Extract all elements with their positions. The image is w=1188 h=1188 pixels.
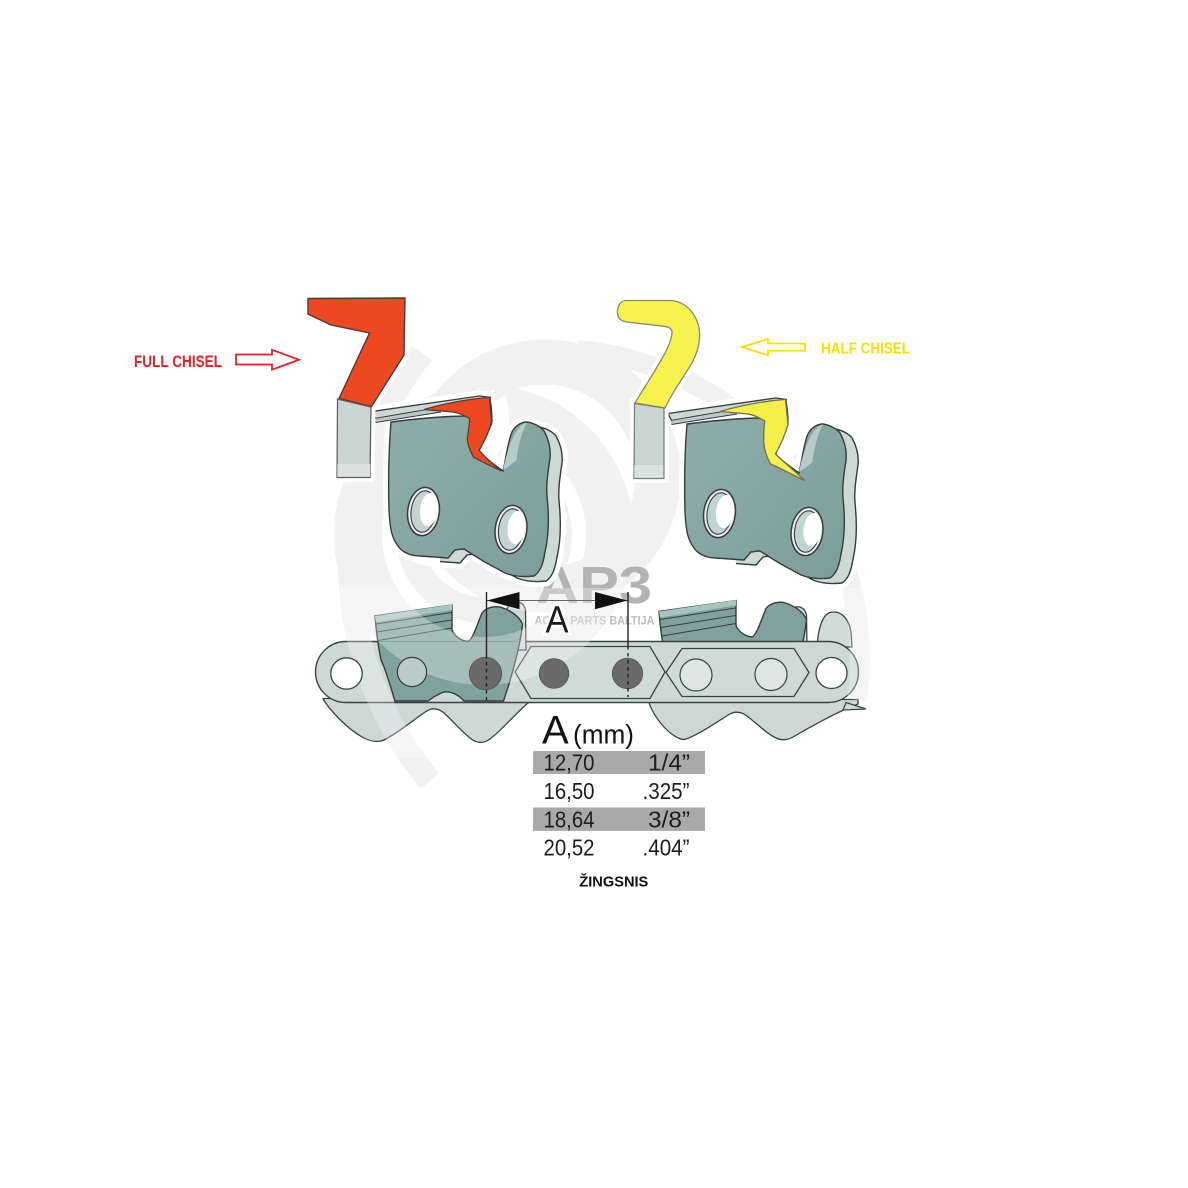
svg-text:1/4”: 1/4” bbox=[648, 750, 690, 776]
svg-text:16,50: 16,50 bbox=[544, 778, 595, 804]
svg-text:FULL CHISEL: FULL CHISEL bbox=[134, 353, 222, 371]
svg-text:20,52: 20,52 bbox=[544, 835, 595, 861]
svg-text:.325”: .325” bbox=[643, 778, 690, 804]
svg-text:3/8”: 3/8” bbox=[648, 806, 690, 832]
svg-text:HALF CHISEL: HALF CHISEL bbox=[821, 341, 910, 358]
svg-text:A: A bbox=[546, 600, 570, 642]
svg-text:A: A bbox=[542, 709, 569, 753]
svg-text:ŽINGSNIS: ŽINGSNIS bbox=[579, 872, 648, 890]
svg-text:(mm): (mm) bbox=[573, 720, 634, 750]
svg-text:.404”: .404” bbox=[643, 835, 690, 861]
svg-text:18,64: 18,64 bbox=[544, 806, 595, 832]
svg-text:12,70: 12,70 bbox=[544, 750, 595, 776]
